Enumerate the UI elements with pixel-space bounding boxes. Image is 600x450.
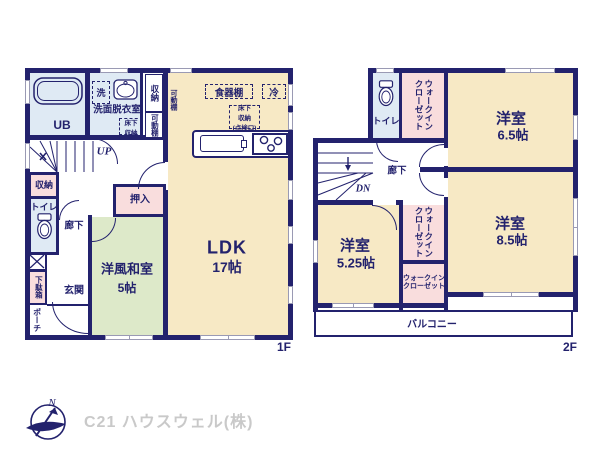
toilet-icon-2f: [377, 80, 395, 107]
label-washitsu-size: 5帖: [118, 282, 137, 296]
label-toilet-2f: トイレ: [372, 116, 399, 126]
label-room85-size: 8.5帖: [496, 234, 527, 249]
label-wic3-l2: クローゼット: [403, 283, 445, 291]
faucet-icon: [241, 140, 247, 148]
window: [313, 240, 318, 263]
door-arc-toilet-2f: [376, 140, 398, 162]
genkan-step-line: [47, 304, 89, 306]
underfloor-l2: 収納: [125, 127, 138, 137]
door-arc-ldk: [138, 162, 165, 189]
label-wic1-l2: クローゼット: [413, 80, 423, 131]
label-wic3-l1: ウォークイン: [403, 275, 445, 283]
wall: [85, 68, 90, 140]
window: [288, 84, 293, 106]
cupboard-box: 食器棚: [205, 84, 253, 99]
toilet-icon-1f: [36, 213, 53, 240]
wall: [444, 68, 448, 143]
window: [25, 143, 30, 169]
window: [376, 68, 394, 73]
window-sliding: [332, 303, 374, 308]
window-sliding: [200, 335, 255, 340]
wall: [368, 68, 373, 143]
label-oshiire: 押入: [130, 194, 150, 206]
window: [170, 68, 192, 73]
wall: [444, 143, 448, 148]
window: [100, 68, 128, 73]
wall: [163, 68, 168, 162]
label-room65-name: 洋室: [496, 110, 526, 127]
label-ub: UB: [53, 119, 70, 133]
label-room85-name: 洋室: [495, 215, 525, 232]
label-ldk-name: LDK: [207, 238, 247, 259]
window: [288, 112, 293, 130]
window: [573, 115, 578, 140]
label-senmen: 洗面脱衣室: [93, 106, 141, 117]
label-rouka-1f: 廊下: [64, 222, 83, 233]
room-ldk: [168, 73, 288, 335]
window: [288, 286, 293, 304]
label-room525-size: 5.25帖: [337, 257, 375, 272]
wall: [420, 167, 578, 172]
hatch-l1: 床下: [238, 102, 251, 112]
door-arc-room65: [419, 144, 444, 167]
label-shuno-column: 収納: [149, 85, 159, 102]
window: [288, 226, 293, 244]
hatch-l3: (点検口): [233, 122, 257, 132]
floor-tag-1f: 1F: [277, 341, 291, 355]
company-watermark: C21 ハウスウェル(株): [84, 408, 253, 432]
cupboard-label: 食器棚: [215, 85, 244, 99]
washer-label: 洗: [96, 86, 105, 99]
label-balcony: バルコニー: [407, 319, 457, 331]
wall: [399, 203, 403, 310]
label-wic1: ウォークイン クローゼット: [413, 80, 433, 131]
door-arc-entrance: [52, 302, 88, 334]
kitchen-sink-icon: [200, 135, 244, 152]
door-arc-toilet-1f: [59, 200, 79, 220]
underfloor-storage-box: 床下 収納: [119, 118, 143, 135]
door-arc-room85: [419, 173, 444, 196]
label-dn: DN: [356, 183, 370, 195]
floor-tag-2f: 2F: [563, 341, 577, 355]
label-shuno-hall: 収納: [35, 180, 53, 190]
label-washitsu-name: 洋風和室: [101, 263, 153, 278]
wall: [313, 200, 373, 205]
window-sliding: [505, 68, 555, 73]
label-wic2-l2: クローゼット: [413, 207, 423, 258]
label-toilet-1f: トイレ: [30, 202, 57, 212]
label-kadodana-note: 可動棚: [169, 90, 177, 111]
window: [25, 80, 30, 104]
label-wic2-l1: ウォークイン: [423, 207, 433, 258]
label-rouka-2f: 廊下: [387, 167, 406, 178]
window-sliding: [483, 292, 539, 297]
stairs-up-icon: [30, 141, 96, 172]
label-ldk-size: 17帖: [212, 259, 242, 275]
wall: [25, 68, 293, 73]
stove-icon: [252, 133, 288, 155]
fridge-box: 冷: [262, 84, 286, 99]
label-up: UP: [97, 146, 112, 159]
washbasin-icon: [113, 79, 138, 100]
fridge-label: 冷: [269, 85, 279, 99]
label-wic1-l1: ウォークイン: [423, 80, 433, 131]
window-sliding: [573, 198, 578, 256]
floor-plan-canvas: 洗 食器棚 冷 床下 収納 床下 収納 (点検口): [0, 0, 600, 450]
underfloor-l1: 床下: [125, 117, 138, 127]
wall: [399, 260, 448, 264]
label-wic2: ウォークイン クローゼット: [413, 207, 433, 258]
washer-box: 洗: [92, 81, 110, 104]
compass-icon: N: [22, 396, 74, 444]
label-genkan: 玄関: [64, 285, 84, 297]
x-mark-icon: [30, 255, 44, 268]
wall: [399, 73, 402, 138]
label-room65-size: 6.5帖: [497, 129, 528, 144]
hatch-l2: 収納: [238, 112, 251, 122]
label-porch: ポーチ: [32, 308, 41, 332]
label-getabako: 下駄箱: [34, 276, 43, 299]
bathtub-icon: [33, 77, 83, 105]
label-kadodana-box: 可動棚: [150, 114, 159, 137]
getabako-upper-box: [28, 253, 47, 271]
wall: [573, 68, 578, 312]
window-sliding: [105, 335, 153, 340]
label-wic3: ウォークイン クローゼット: [403, 275, 445, 291]
window: [288, 180, 293, 200]
compass-n-label: N: [47, 397, 56, 409]
label-room525-name: 洋室: [340, 237, 370, 254]
underfloor-hatch-box: 床下 収納 (点検口): [229, 105, 260, 129]
